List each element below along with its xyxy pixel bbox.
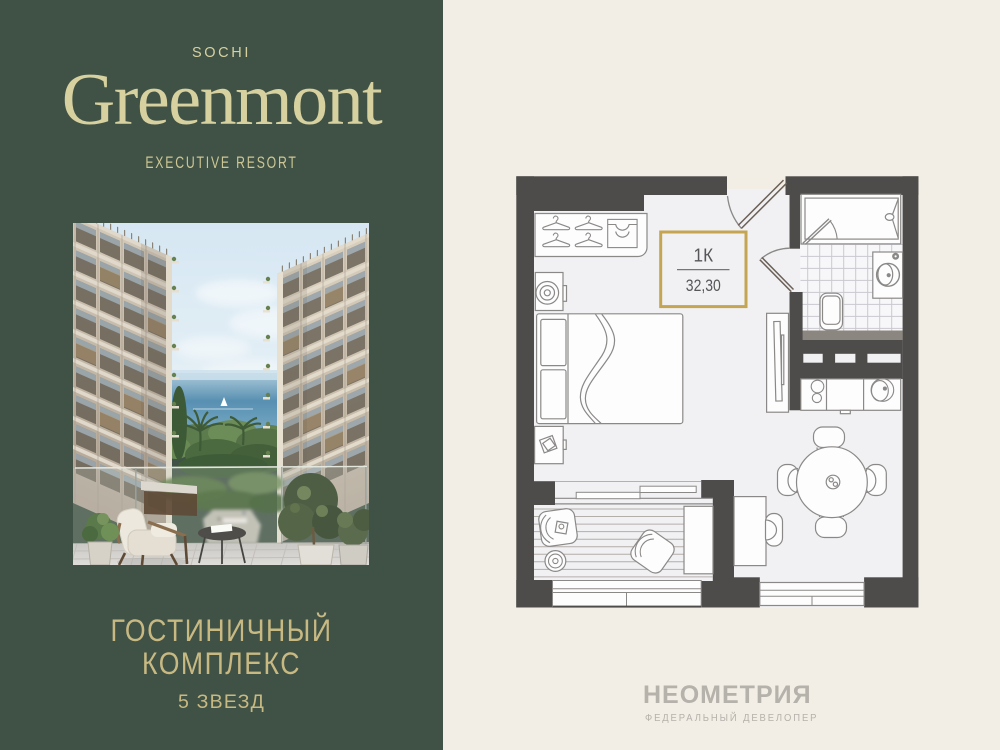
svg-text:1К: 1К <box>694 245 714 266</box>
svg-text:32,30: 32,30 <box>686 276 721 295</box>
